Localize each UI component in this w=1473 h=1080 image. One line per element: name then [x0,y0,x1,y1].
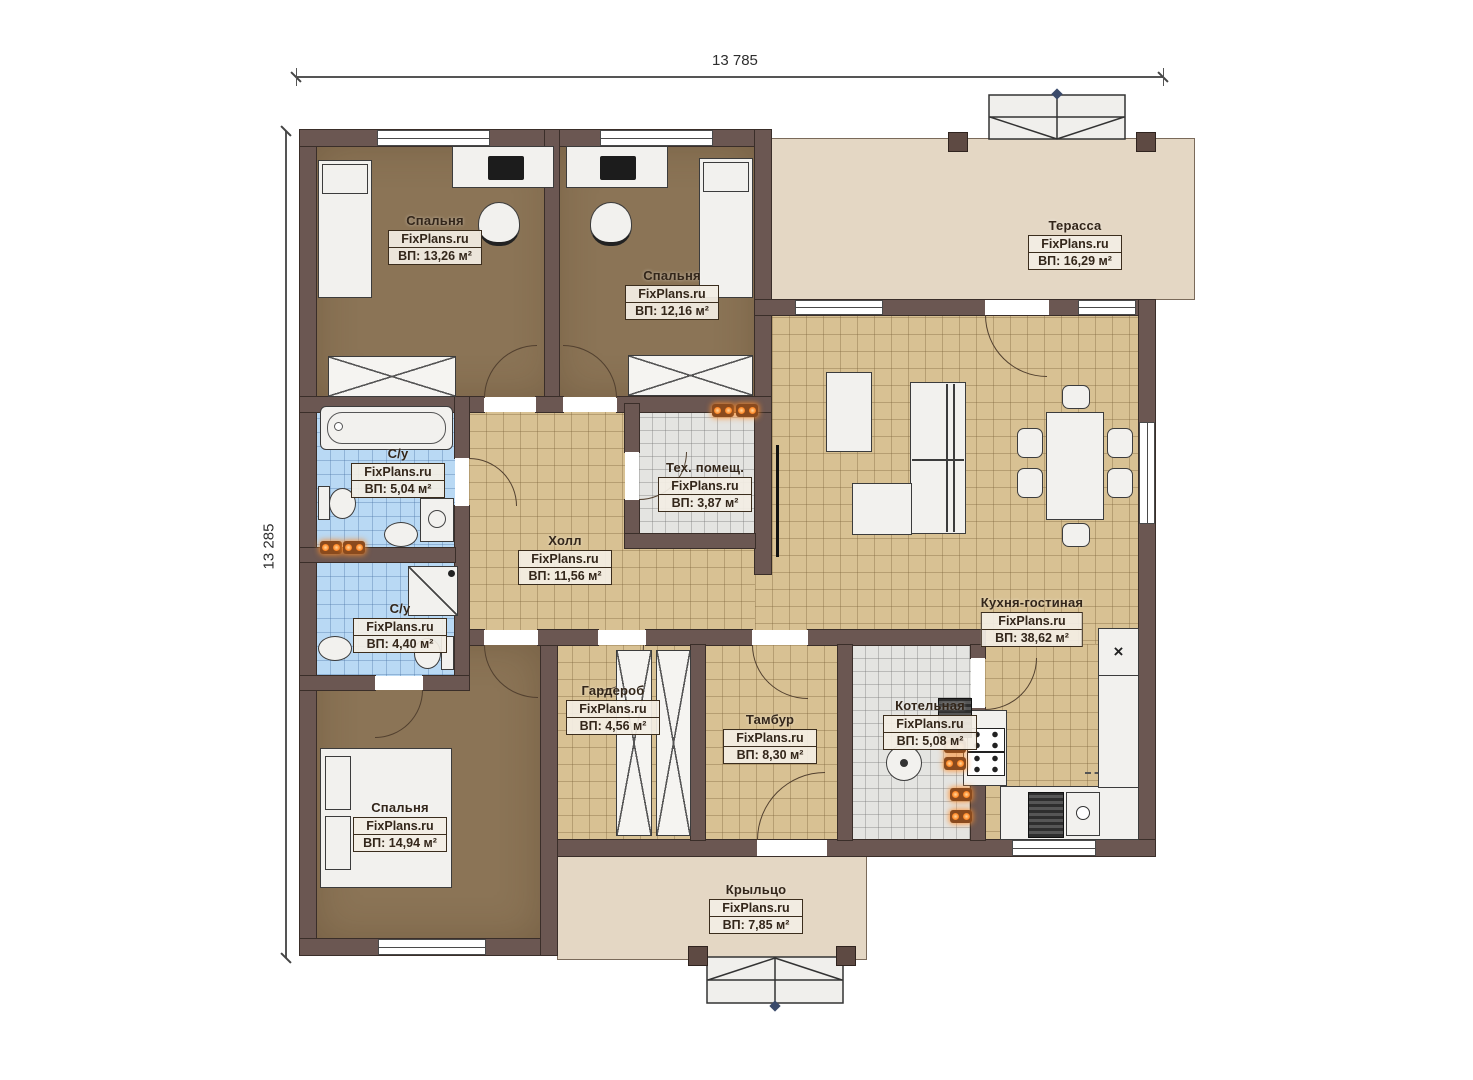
room-area: ВП: 8,30 м² [724,747,816,763]
room-area: ВП: 3,87 м² [659,495,751,511]
dining-chair [1107,428,1133,458]
room-area: ВП: 5,04 м² [352,481,444,497]
room-area: ВП: 14,94 м² [354,835,446,851]
room-label-bedroom1: Спальня FixPlans.ru ВП: 13,26 м² [388,213,482,265]
room-label-porch: Крыльцо FixPlans.ru ВП: 7,85 м² [709,882,803,934]
room-name: Кухня-гостиная [981,595,1083,610]
wardrobe-cabinet [628,355,753,396]
window [1078,300,1136,315]
door-opening [563,397,617,412]
room-label-bedroom2: Спальня FixPlans.ru ВП: 12,16 м² [625,268,719,320]
wall [1139,300,1155,855]
watermark: FixPlans.ru [659,478,751,495]
wall [455,397,469,458]
room-label-wardrobe: Гардероб FixPlans.ru ВП: 4,56 м² [566,683,660,735]
dining-chair [1107,468,1133,498]
dining-chair [1062,385,1090,409]
dining-chair [1017,468,1043,498]
room-label-tech: Тех. помещ. FixPlans.ru ВП: 3,87 м² [658,460,752,512]
door-opening [985,300,1049,315]
room-area: ВП: 11,56 м² [519,568,611,584]
porch-steps [706,956,844,1004]
wall [646,630,752,645]
room-area: ВП: 12,16 м² [626,303,718,319]
heater-icon [736,404,758,417]
wall [625,404,639,452]
bathtub-inner [327,412,446,444]
dimension-line-top [296,76,1164,78]
wall [538,630,598,645]
heater-icon [343,541,365,554]
room-area: ВП: 38,62 м² [982,630,1082,646]
watermark: FixPlans.ru [884,716,976,733]
tv-stand [826,372,872,452]
wall [838,645,852,840]
wardrobe-cabinet [656,650,691,836]
room-label-kitchen: Кухня-гостиная FixPlans.ru ВП: 38,62 м² [981,595,1083,647]
wall [625,534,755,548]
heater-icon [950,788,972,801]
bed-pillow [325,816,351,870]
room-area: ВП: 7,85 м² [710,917,802,933]
window [378,939,486,955]
watermark: FixPlans.ru [352,464,444,481]
bathtub-drain [334,422,343,431]
wall [691,645,705,840]
bed-pillow [322,164,368,194]
heater-icon [944,757,966,770]
room-name: С/у [353,601,447,616]
dimension-width-label: 13 785 [712,52,758,69]
wall [808,630,985,645]
terrace-column [948,132,968,152]
door-opening [484,397,536,412]
window [1139,422,1155,524]
sofa-line [953,384,955,532]
room-area: ВП: 16,29 м² [1029,253,1121,269]
door-opening [375,676,423,690]
porch-column [688,946,708,966]
room-name: Терасса [1028,218,1122,233]
sofa-vertical [910,382,966,534]
room-name: Гардероб [566,683,660,698]
sofa-line [912,459,964,461]
window [1012,840,1096,856]
room-area: ВП: 4,56 м² [567,718,659,734]
stove-burners [967,752,1005,776]
heater-icon [950,810,972,823]
room-name: Спальня [388,213,482,228]
room-name: С/у [351,446,445,461]
sink [318,636,352,661]
room-name: Тамбур [723,712,817,727]
watermark: FixPlans.ru [626,286,718,303]
room-area: ВП: 5,08 м² [884,733,976,749]
terrace-steps [988,94,1126,140]
door-opening [455,458,469,506]
wardrobe-cabinet [328,356,456,397]
watermark: FixPlans.ru [519,551,611,568]
room-name: Спальня [625,268,719,283]
laptop-icon [600,156,636,180]
terrace-floor [771,138,1195,300]
room-label-bath2: С/у FixPlans.ru ВП: 4,40 м² [353,601,447,653]
fridge-mark: × [1114,642,1124,662]
dimension-height-label: 13 285 [260,524,277,570]
window [795,300,883,315]
room-label-boiler: Котельная FixPlans.ru ВП: 5,08 м² [883,698,977,750]
dishwasher [1028,792,1064,838]
dimension-end [296,68,297,86]
wall [536,397,563,412]
door-opening [484,630,538,645]
dining-chair [1017,428,1043,458]
wardrobe-cabinet [616,650,652,836]
shower-head [448,570,455,577]
watermark: FixPlans.ru [982,613,1082,630]
wall [755,130,771,574]
office-chair [478,202,520,246]
window [377,130,490,146]
room-name: Котельная [883,698,977,713]
room-name: Холл [518,533,612,548]
porch-column [836,946,856,966]
dining-table [1046,412,1104,520]
sink-basin [1076,806,1090,820]
dining-chair [1062,523,1090,547]
room-label-hall: Холл FixPlans.ru ВП: 11,56 м² [518,533,612,585]
door-opening [757,840,827,856]
watermark: FixPlans.ru [354,619,446,636]
room-area: ВП: 13,26 м² [389,248,481,264]
wall [541,630,557,955]
room-label-bath1: С/у FixPlans.ru ВП: 5,04 м² [351,446,445,498]
room-name: Спальня [353,800,447,815]
sofa-line [946,384,948,532]
bed-pillow [325,756,351,810]
door-leaf [776,445,779,557]
terrace-column [1136,132,1156,152]
window [600,130,713,146]
office-chair [590,202,632,246]
bed-pillow [703,162,749,192]
room-label-bedroom3: Спальня FixPlans.ru ВП: 14,94 м² [353,800,447,852]
wall [300,130,316,955]
sink [384,522,418,547]
wall [423,676,469,690]
watermark: FixPlans.ru [354,818,446,835]
heater-icon [712,404,734,417]
room-name: Крыльцо [709,882,803,897]
heater-icon [320,541,342,554]
room-label-terrace: Терасса FixPlans.ru ВП: 16,29 м² [1028,218,1122,270]
room-label-tambour: Тамбур FixPlans.ru ВП: 8,30 м² [723,712,817,764]
dimension-end [1163,68,1164,86]
watermark: FixPlans.ru [1029,236,1121,253]
dimension-line-left [285,131,287,958]
laptop-icon [488,156,524,180]
sofa-horizontal [852,483,912,535]
door-opening [625,452,639,500]
door-opening [598,630,646,645]
floor-plan: 13 785 13 285 [0,0,1473,1080]
watermark: FixPlans.ru [567,701,659,718]
fridge: × [1098,628,1139,676]
boiler-dot [900,759,908,767]
room-area: ВП: 4,40 м² [354,636,446,652]
room-name: Тех. помещ. [658,460,752,475]
watermark: FixPlans.ru [389,231,481,248]
door-opening [752,630,808,645]
washing-machine-door [428,510,446,528]
wall [300,676,375,690]
watermark: FixPlans.ru [724,730,816,747]
watermark: FixPlans.ru [710,900,802,917]
